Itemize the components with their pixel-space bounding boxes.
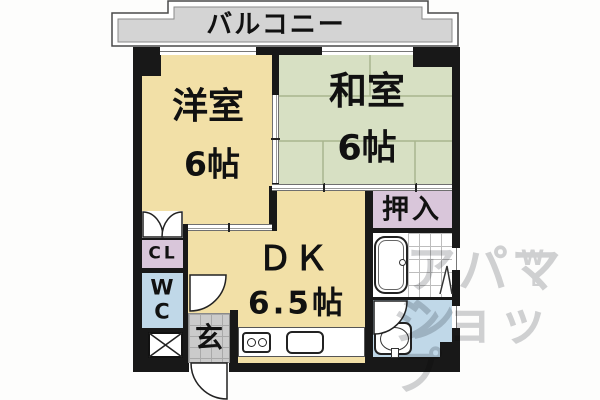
wc-label-c: C xyxy=(154,302,169,323)
cl-door-area xyxy=(142,211,183,238)
cl-label: CL xyxy=(148,246,177,263)
corner-wall-top-right xyxy=(413,47,452,67)
window-bathroom xyxy=(452,248,460,270)
western-room-label: 洋室 xyxy=(172,89,244,125)
genkan-label: 玄 xyxy=(195,324,223,352)
kitchen-sink-icon xyxy=(286,331,324,354)
window-washroom xyxy=(452,306,460,328)
japanese-room-size: 6帖 xyxy=(337,132,396,167)
dk-size: 6.5帖 xyxy=(248,289,346,320)
bathtub-knob xyxy=(399,259,406,266)
stove-burner-left xyxy=(247,338,256,347)
wc-label-w: W xyxy=(150,278,173,299)
room-western xyxy=(142,55,272,224)
watermark-logo-l: L xyxy=(531,274,544,289)
window-western-room xyxy=(160,47,256,55)
corner-wall-top-left xyxy=(133,47,161,76)
stove-burner-right xyxy=(258,338,267,347)
japanese-room-label: 和室 xyxy=(329,72,405,110)
balcony-label: バルコニー xyxy=(206,12,345,38)
dk-label: ＤＫ xyxy=(258,242,330,276)
fusuma-japanese-dk-oshiire xyxy=(272,184,452,191)
watermark-logo-w: W xyxy=(521,248,547,269)
entrance-opening xyxy=(189,363,229,372)
floor-plan: バルコニー 洋室 6帖 和室 6帖 押入 ＤＫ 6.5帖 CL W C 玄 アパ… xyxy=(0,0,600,400)
window-japanese-room xyxy=(322,47,413,55)
western-room-size: 6帖 xyxy=(184,148,240,181)
washbasin-stem xyxy=(391,348,399,358)
sliding-door-western-dk xyxy=(188,224,272,231)
bathroom-tile-floor xyxy=(408,233,452,297)
sliding-door-western-japanese xyxy=(272,95,279,183)
washbasin-icon xyxy=(374,322,412,355)
pipe-shaft-box xyxy=(148,332,183,358)
washroom-corner-wall xyxy=(440,342,452,357)
genkan-right-wall xyxy=(230,310,238,372)
oshiire-label: 押入 xyxy=(382,197,442,224)
room-dk-upper xyxy=(272,191,365,233)
